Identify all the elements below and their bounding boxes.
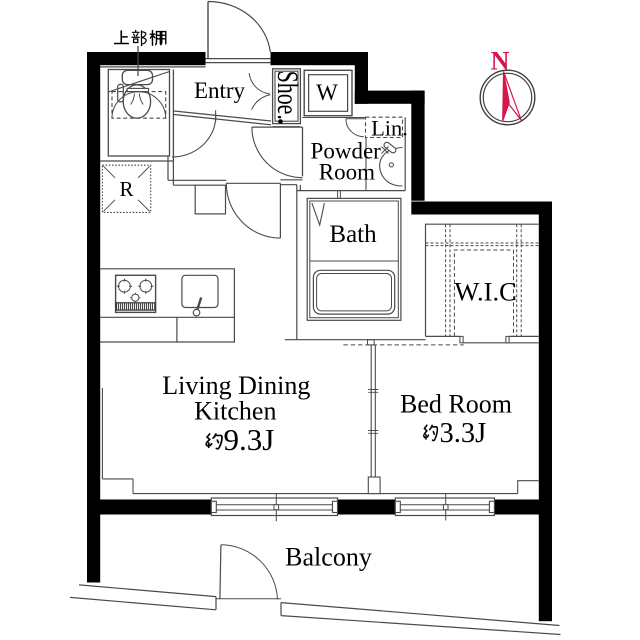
svg-text:9.3J: 9.3J [224,422,275,457]
svg-text:Room: Room [319,160,375,185]
svg-text:N: N [491,47,510,76]
svg-text:Entry: Entry [194,78,246,103]
svg-text:W: W [316,80,338,105]
svg-text:Bath: Bath [329,221,377,248]
svg-text:Balcony: Balcony [285,543,372,572]
svg-text:Bed Room: Bed Room [400,389,512,418]
svg-text:W.I.C: W.I.C [454,276,516,306]
svg-text:Shoe.: Shoe. [271,71,304,120]
svg-text:Living Dining: Living Dining [162,371,310,400]
svg-text:Lin.: Lin. [371,116,408,141]
svg-text:3.3J: 3.3J [440,418,487,449]
svg-text:R: R [119,177,133,201]
